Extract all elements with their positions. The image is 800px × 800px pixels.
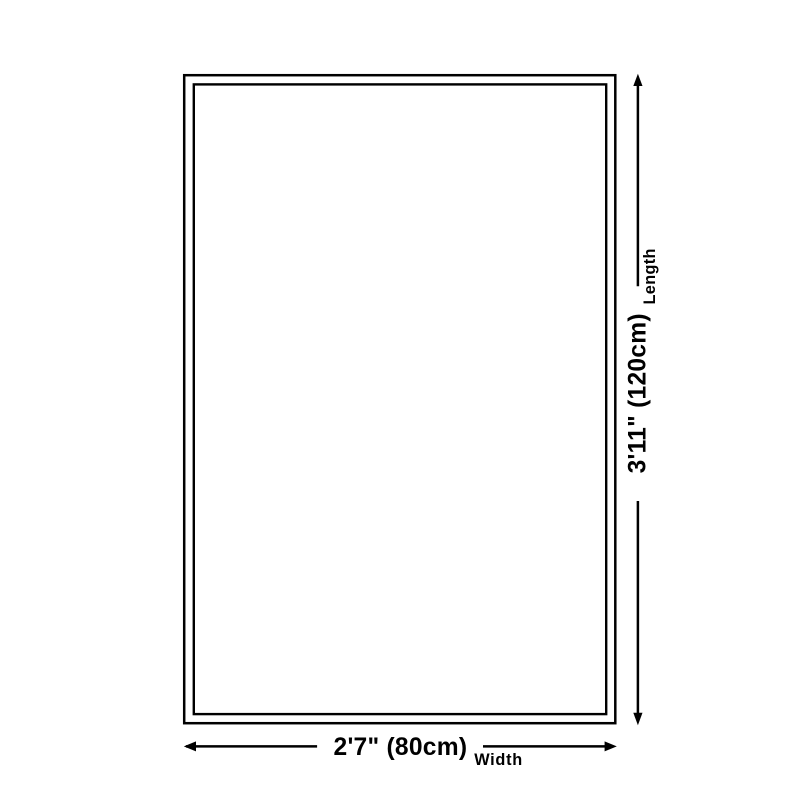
svg-text:2'7" (80cm): 2'7" (80cm) (334, 734, 468, 761)
svg-text:Width: Width (474, 751, 523, 769)
svg-text:Length: Length (641, 248, 659, 304)
svg-text:3'11" (120cm): 3'11" (120cm) (625, 313, 652, 473)
